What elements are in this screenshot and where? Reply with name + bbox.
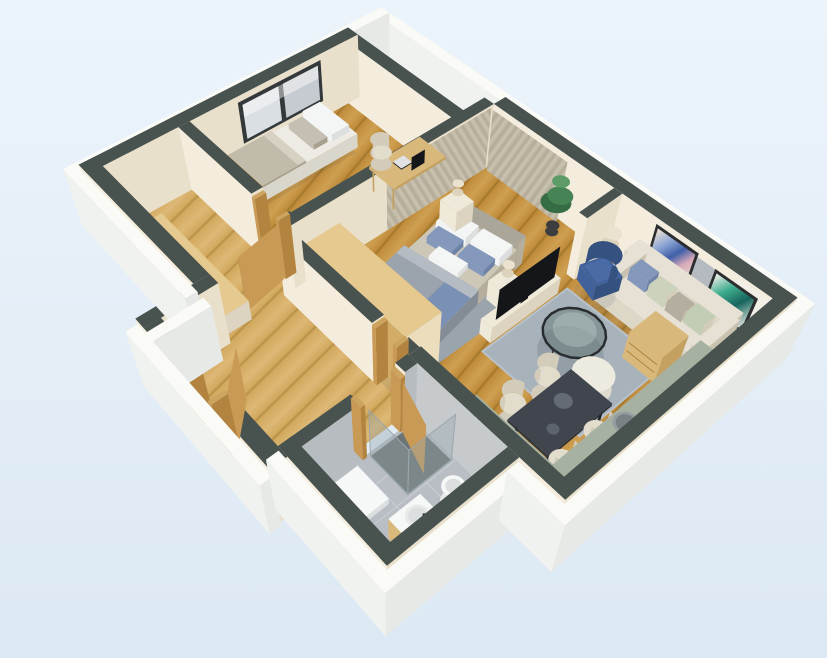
bathroom-door-frame [391, 370, 401, 433]
door-frame [376, 320, 388, 385]
apartment-3d-floor-plan [0, 0, 827, 658]
floor-plan-stage [0, 0, 827, 658]
desk-leg [393, 188, 395, 211]
